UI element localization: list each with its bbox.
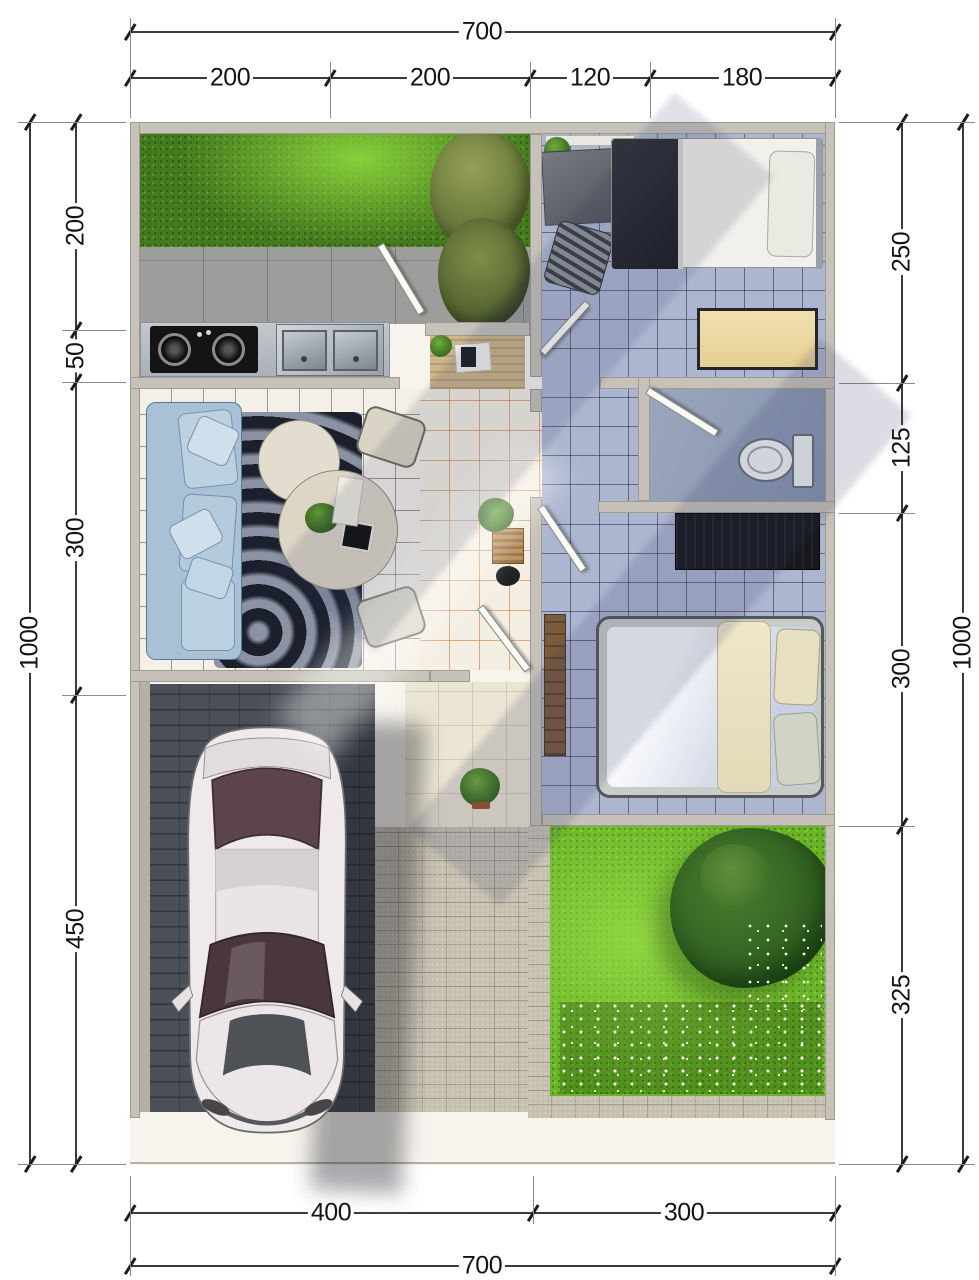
garden-border-pavers: [528, 1096, 835, 1118]
extension-line: [839, 826, 915, 827]
dim-right-total: 1000: [950, 613, 976, 673]
terrace-plant-pot: [472, 802, 490, 809]
wall-hall-east-lower: [530, 497, 542, 826]
burner: [212, 333, 245, 366]
dim-bottom-seg-1: 400: [308, 1200, 354, 1226]
stove-knob: [206, 330, 211, 335]
extension-line: [62, 695, 126, 696]
extension-line: [330, 62, 331, 118]
dim-left-seg-4: 450: [63, 906, 89, 952]
wall-top: [130, 122, 835, 134]
extension-line: [18, 122, 126, 123]
bed1-pillow: [767, 150, 816, 257]
extension-line: [839, 1164, 975, 1165]
wall-bedroom1-south: [600, 377, 835, 389]
kitchen-sink: [276, 324, 384, 376]
bed2: [596, 616, 824, 798]
bed1: [611, 138, 823, 268]
sofa: [146, 402, 242, 660]
bed1-frame-edge: [816, 139, 822, 269]
dim-left-total: 1000: [17, 613, 43, 673]
curb: [140, 682, 150, 1112]
flower-bed: [746, 922, 822, 1010]
bed2-blanket: [717, 621, 771, 793]
extension-line: [650, 62, 651, 118]
floor-plan-canvas: 700 200 200 120 180 1000 200 50 300 450 …: [0, 0, 979, 1280]
dim-left-seg-3: 300: [63, 515, 89, 561]
dim-right-seg-1: 250: [889, 229, 915, 275]
extension-line: [18, 1164, 126, 1165]
wardrobe: [675, 513, 820, 570]
coffee-table: [278, 470, 398, 590]
table-runner: [332, 475, 364, 526]
sink-drain: [301, 356, 307, 362]
wall-right: [825, 122, 835, 1120]
dim-top-seg-2: 200: [407, 65, 453, 91]
wall-bedroom1-west: [530, 134, 542, 377]
dim-line: [75, 122, 77, 1164]
extension-line: [839, 513, 915, 514]
dim-right-seg-3: 300: [889, 646, 915, 692]
dim-left-seg-2: 50: [63, 340, 89, 373]
wall-hall-east-upper: [530, 389, 542, 412]
garden-border-pavers: [528, 826, 550, 1118]
extension-line: [62, 330, 126, 331]
dim-bottom-total: 700: [459, 1253, 505, 1279]
extension-line: [130, 1176, 131, 1276]
bedroom1-table: [697, 308, 818, 370]
wall-front: [430, 670, 470, 682]
dim-line: [130, 1212, 835, 1214]
wall-bathroom-south: [598, 501, 835, 513]
dim-left-seg-1: 200: [63, 203, 89, 249]
laptop: [461, 347, 476, 367]
extension-line: [62, 382, 126, 383]
extension-line: [533, 1176, 534, 1224]
extension-line: [530, 62, 531, 118]
dim-top-seg-1: 200: [207, 65, 253, 91]
corridor-floor: [542, 377, 638, 513]
dim-right-seg-4: 325: [889, 972, 915, 1018]
wall-mid-kitchen: [130, 377, 400, 389]
wall-left: [130, 122, 140, 1118]
flower-bed: [560, 1002, 822, 1094]
house-plan: [130, 122, 835, 1165]
stove: [150, 326, 258, 373]
console-table: [492, 528, 524, 564]
extension-line: [835, 1176, 836, 1276]
dim-top-seg-3: 120: [567, 65, 613, 91]
extension-line: [839, 383, 915, 384]
stove-knob: [197, 332, 202, 337]
bed2-pillow: [773, 628, 821, 706]
bed1-fold: [678, 139, 683, 269]
bed2-pillow: [773, 712, 822, 787]
extension-line: [835, 18, 836, 118]
toilet-seat: [747, 446, 783, 474]
wall: [425, 322, 530, 336]
bedroom1-desk: [541, 148, 617, 226]
toilet-tank: [792, 434, 814, 488]
dim-top-seg-4: 180: [719, 65, 765, 91]
extension-line: [839, 122, 975, 123]
extension-line: [130, 18, 131, 118]
wall-living-south: [130, 670, 430, 682]
bed1-blanket: [612, 139, 678, 269]
dim-top-total: 700: [459, 19, 505, 45]
terrace: [405, 682, 530, 827]
wall-bedroom2-south: [542, 814, 835, 826]
sink-basin: [333, 330, 378, 371]
bedroom2-shelf: [544, 614, 566, 756]
light-pavers: [375, 827, 530, 1112]
sink-drain: [353, 356, 359, 362]
burner: [158, 333, 191, 366]
dim-right-seg-2: 125: [889, 425, 915, 471]
toilet-bowl: [738, 438, 794, 482]
sink-basin: [282, 330, 327, 371]
dim-bottom-seg-2: 300: [661, 1200, 707, 1226]
car: [168, 698, 366, 1165]
